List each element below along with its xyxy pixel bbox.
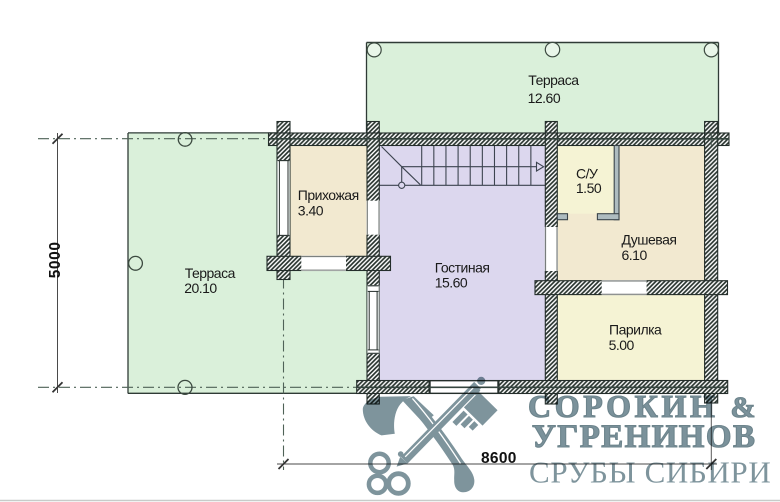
svg-text:СРУБЫ СИБИРИ: СРУБЫ СИБИРИ (529, 454, 771, 489)
svg-text:УГРЕНИНОВ: УГРЕНИНОВ (532, 419, 757, 455)
